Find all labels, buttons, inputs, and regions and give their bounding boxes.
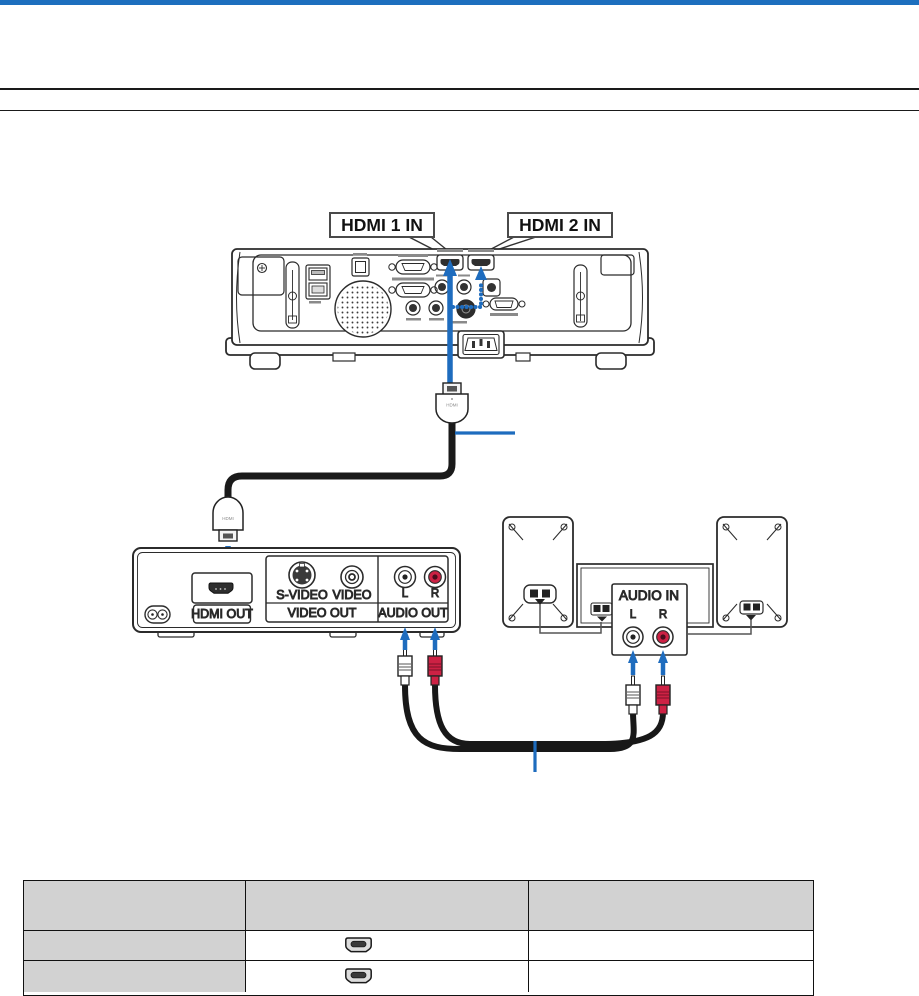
connector-table [23, 880, 814, 996]
audio-in-left-label: L [630, 609, 637, 621]
speaker-right [717, 517, 787, 627]
dvd-video-port [341, 566, 363, 588]
hdmi-cable: HDMI HDMI [213, 383, 515, 541]
projector-foot-left [250, 353, 280, 369]
table-header-cell [24, 881, 246, 931]
dvd-hdmi-out-label: HDMI OUT [191, 607, 253, 621]
projector-foot-right [596, 353, 626, 369]
table-row1-connector-cell [246, 931, 529, 961]
hdmi-cable-line [228, 418, 452, 514]
dvd-audio-out-left-jack [395, 567, 416, 588]
audio-in-left-jack [623, 627, 643, 647]
hdmi-connector-icon [345, 968, 372, 985]
connection-diagram: HDMI 1 IN HDMI 2 IN [0, 0, 919, 880]
audio-in-panel: AUDIO IN L R [612, 584, 687, 655]
table-row2-left-cell [24, 961, 246, 992]
hdmi2-callout-label: HDMI 2 IN [519, 215, 601, 235]
dvd-player: HDMI OUT S-VIDEO VIDEO VIDEO OUT [133, 548, 460, 637]
rca-plug-white-right [626, 676, 640, 714]
table-row1-right-cell [529, 931, 813, 961]
dvd-s-video-label: S-VIDEO [276, 588, 328, 602]
dvd-audio-out-label: AUDIO OUT [378, 606, 448, 620]
ac-in-socket [458, 331, 504, 358]
table-row2-connector-cell [246, 961, 529, 992]
dvd-video-label: VIDEO [333, 588, 372, 602]
table-header-cell [529, 881, 813, 931]
audio-equipment: AUDIO IN L R [503, 517, 787, 655]
hdmi-plug-bottom-label: HDMI [222, 516, 234, 521]
audio-in-right-label: R [659, 609, 667, 621]
table-row1-left-cell [24, 931, 246, 961]
hdmi-plug-top-label: HDMI [446, 403, 458, 408]
dvd-video-out-label: VIDEO OUT [288, 606, 357, 620]
speaker-left [503, 517, 573, 627]
table-row2-right-cell [529, 961, 813, 992]
dvd-audio-out-right-jack [425, 567, 446, 588]
dvd-s-video-port [289, 562, 315, 588]
hdmi1-callout-label: HDMI 1 IN [341, 215, 423, 235]
dvd-left-label: L [402, 588, 409, 600]
projector-rear-panel [226, 249, 654, 369]
rca-plug-white-left [398, 647, 412, 685]
hdmi-connector-icon [345, 937, 372, 954]
hdmi-plug-bottom: HDMI [213, 497, 243, 541]
audio-in-label: AUDIO IN [619, 588, 679, 603]
dvd-right-label: R [431, 588, 439, 600]
audio-in-right-jack [653, 627, 673, 647]
hdmi-plug-top: HDMI [436, 383, 468, 423]
rca-plug-red-right [656, 676, 670, 714]
rca-plug-red-left [428, 647, 442, 685]
audio-cable [398, 647, 670, 772]
table-header-cell [246, 881, 529, 931]
